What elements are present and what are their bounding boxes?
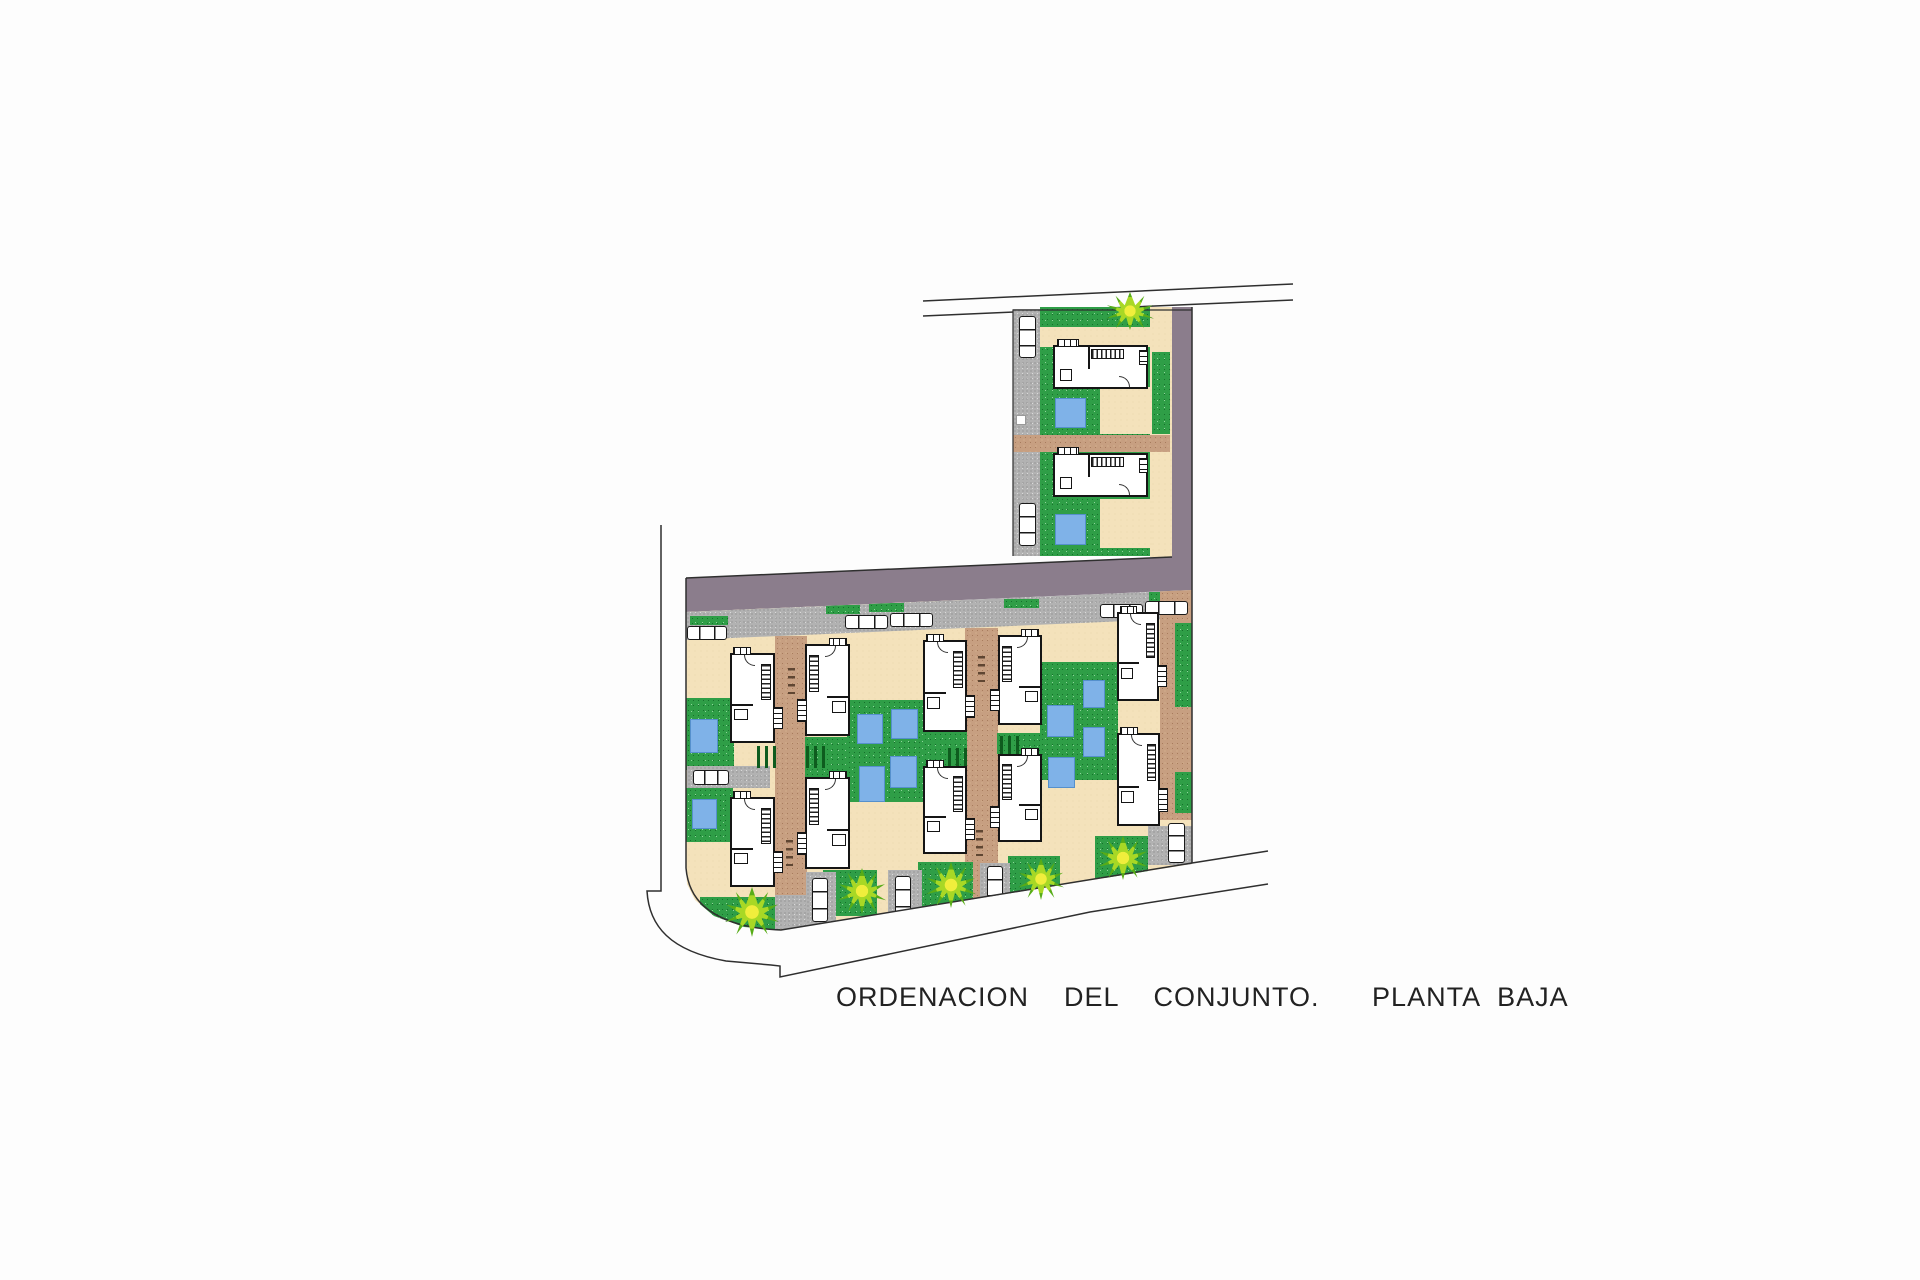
palm-tree-icon [1098, 836, 1148, 880]
site-plan-canvas: ORDENACION DEL CONJUNTO. PLANTA BAJA [0, 0, 1920, 1280]
palm-tree-icon [838, 868, 886, 914]
palm-tree-icon [1106, 292, 1154, 330]
trees-layer [0, 0, 1920, 1280]
palm-tree-icon [926, 862, 976, 908]
palm-tree-icon [725, 887, 779, 937]
drawing-title: ORDENACION DEL CONJUNTO. PLANTA BAJA [836, 982, 1569, 1013]
palm-tree-icon [1018, 858, 1064, 900]
